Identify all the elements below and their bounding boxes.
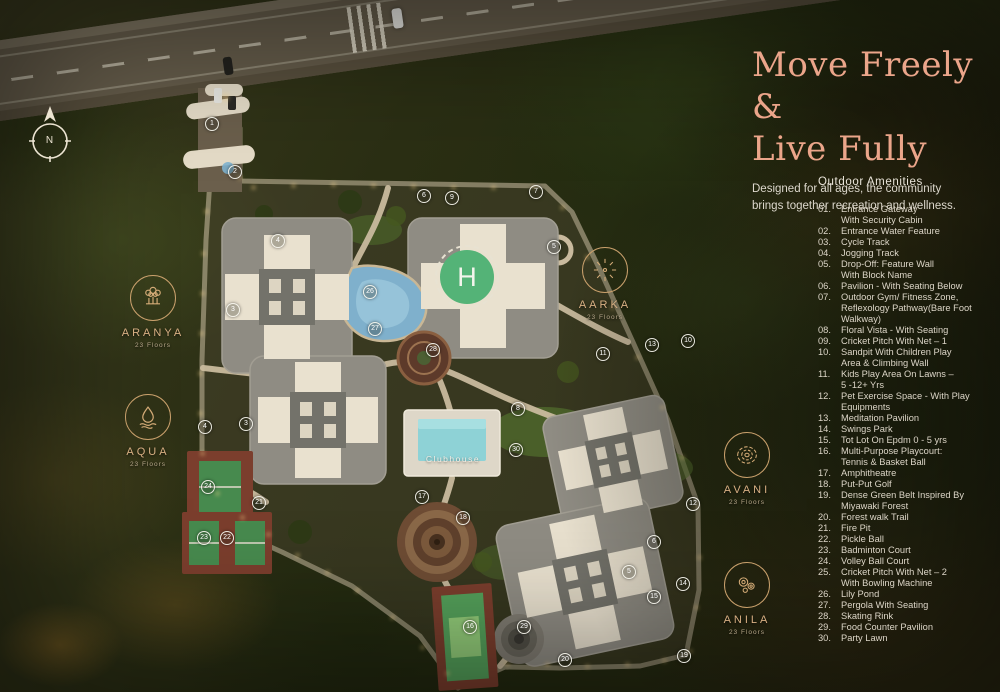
amenity-item-08: 08.Floral Vista - With Seating bbox=[818, 325, 998, 336]
amenities-panel: Outdoor Amenities 01.Entrance GatewayWit… bbox=[818, 176, 998, 644]
amenity-text: Tot Lot On Epdm 0 - 5 yrs bbox=[841, 435, 947, 446]
tower-floors: 23 Floors bbox=[93, 461, 203, 468]
map-marker-14-32[interactable]: 14 bbox=[676, 577, 690, 591]
amenity-item-27: 27.Pergola With Seating bbox=[818, 600, 998, 611]
amenity-number: 15. bbox=[818, 435, 835, 446]
amenity-item-02: 02.Entrance Water Feature bbox=[818, 226, 998, 237]
map-marker-6-4[interactable]: 6 bbox=[417, 189, 431, 203]
amenity-text: Pergola With Seating bbox=[841, 600, 928, 611]
amenity-number: 16. bbox=[818, 446, 835, 457]
amenity-number: 28. bbox=[818, 611, 835, 622]
amenity-number: 23. bbox=[818, 545, 835, 556]
map-marker-16-27[interactable]: 16 bbox=[463, 620, 477, 634]
amenity-text: Put-Put Golf bbox=[841, 479, 892, 490]
map-marker-4-2[interactable]: 4 bbox=[271, 234, 285, 248]
amenity-item-11: 11.Kids Play Area On Lawns –5 -12+ Yrs bbox=[818, 369, 998, 391]
amenity-text: Pavilion - With Seating Below bbox=[841, 281, 962, 292]
amenity-item-23: 23.Badminton Court bbox=[818, 545, 998, 556]
amenity-text: Outdoor Gym/ Fitness Zone,Reflexology Pa… bbox=[841, 292, 972, 325]
amenity-number: 29. bbox=[818, 622, 835, 633]
amenity-number: 30. bbox=[818, 633, 835, 644]
map-marker-23-20[interactable]: 23 bbox=[197, 531, 211, 545]
amenity-item-01: 01.Entrance GatewayWith Security Cabin bbox=[818, 204, 998, 226]
amenity-number: 01. bbox=[818, 204, 835, 215]
amenity-text: Drop-Off: Feature WallWith Block Name bbox=[841, 259, 934, 281]
amenity-item-19: 19.Dense Green Belt Inspired ByMiyawaki … bbox=[818, 490, 998, 512]
amenity-item-17: 17.Amphitheatre bbox=[818, 468, 998, 479]
amenity-number: 09. bbox=[818, 336, 835, 347]
amenities-list: 01.Entrance GatewayWith Security Cabin02… bbox=[818, 204, 998, 644]
tower-name: ANILA bbox=[692, 614, 802, 626]
amenity-text: Floral Vista - With Seating bbox=[841, 325, 948, 336]
amenity-item-26: 26.Lily Pond bbox=[818, 589, 998, 600]
amenity-text: Forest walk Trail bbox=[841, 512, 909, 523]
map-marker-15-31[interactable]: 15 bbox=[647, 590, 661, 604]
amenity-item-05: 05.Drop-Off: Feature WallWith Block Name bbox=[818, 259, 998, 281]
banyan-tree-icon bbox=[130, 275, 176, 321]
map-marker-9-5[interactable]: 9 bbox=[445, 191, 459, 205]
tower-floors: 23 Floors bbox=[692, 499, 802, 506]
map-marker-20-25[interactable]: 20 bbox=[558, 653, 572, 667]
map-marker-10-13[interactable]: 10 bbox=[681, 334, 695, 348]
map-marker-2-1[interactable]: 2 bbox=[228, 165, 242, 179]
tower-label-anila: ANILA23 Floors bbox=[692, 562, 802, 636]
tower-label-avani: AVANI23 Floors bbox=[692, 432, 802, 506]
map-marker-3-17[interactable]: 3 bbox=[239, 417, 253, 431]
amenity-text: Fire Pit bbox=[841, 523, 870, 534]
amenity-item-10: 10.Sandpit With Children PlayArea & Clim… bbox=[818, 347, 998, 369]
title-line-2: Live Fully bbox=[752, 128, 998, 170]
clubhouse-label: Clubhouse bbox=[404, 454, 502, 464]
tower-floors: 23 Floors bbox=[550, 314, 660, 321]
amenity-item-30: 30.Party Lawn bbox=[818, 633, 998, 644]
map-marker-8-14[interactable]: 8 bbox=[511, 402, 525, 416]
tower-name: AVANI bbox=[692, 484, 802, 496]
map-marker-3-3[interactable]: 3 bbox=[226, 303, 240, 317]
amenity-number: 07. bbox=[818, 292, 835, 303]
amenity-text: Pickle Ball bbox=[841, 534, 884, 545]
compass-north-label: N bbox=[25, 118, 75, 164]
amenity-number: 18. bbox=[818, 479, 835, 490]
map-marker-24-18[interactable]: 24 bbox=[201, 480, 215, 494]
amenity-item-16: 16.Multi-Purpose Playcourt:Tennis & Bask… bbox=[818, 446, 998, 468]
amenity-item-24: 24.Volley Ball Court bbox=[818, 556, 998, 567]
amenity-text: Amphitheatre bbox=[841, 468, 896, 479]
tower-name: AARKA bbox=[550, 299, 660, 311]
amenity-item-25: 25.Cricket Pitch With Net – 2With Bowlin… bbox=[818, 567, 998, 589]
map-marker-7-6[interactable]: 7 bbox=[529, 185, 543, 199]
map-marker-19-26[interactable]: 19 bbox=[677, 649, 691, 663]
amenity-item-28: 28.Skating Rink bbox=[818, 611, 998, 622]
amenity-text: Skating Rink bbox=[841, 611, 893, 622]
amenity-number: 22. bbox=[818, 534, 835, 545]
amenity-text: Badminton Court bbox=[841, 545, 911, 556]
map-marker-1-0[interactable]: 1 bbox=[205, 117, 219, 131]
amenity-number: 05. bbox=[818, 259, 835, 270]
amenity-item-22: 22.Pickle Ball bbox=[818, 534, 998, 545]
amenity-number: 14. bbox=[818, 424, 835, 435]
amenity-item-12: 12.Pet Exercise Space - With PlayEquipme… bbox=[818, 391, 998, 413]
page-title: Move Freely & Live Fully bbox=[752, 44, 998, 170]
helipad-label: H bbox=[455, 257, 479, 297]
amenity-text: Meditation Pavilion bbox=[841, 413, 919, 424]
amenity-item-15: 15.Tot Lot On Epdm 0 - 5 yrs bbox=[818, 435, 998, 446]
map-marker-18-23[interactable]: 18 bbox=[456, 511, 470, 525]
amenity-item-06: 06.Pavilion - With Seating Below bbox=[818, 281, 998, 292]
wind-swirls-icon bbox=[724, 562, 770, 608]
amenity-number: 20. bbox=[818, 512, 835, 523]
map-marker-6-29[interactable]: 6 bbox=[647, 535, 661, 549]
amenity-text: Cycle Track bbox=[841, 237, 890, 248]
tower-floors: 23 Floors bbox=[98, 342, 208, 349]
amenity-text: Swings Park bbox=[841, 424, 893, 435]
map-marker-11-12[interactable]: 11 bbox=[596, 347, 610, 361]
masterplan-page: N 12436975262728131110830432421232217182… bbox=[0, 0, 1000, 692]
amenity-item-14: 14.Swings Park bbox=[818, 424, 998, 435]
tower-label-aqua: AQUA23 Floors bbox=[93, 394, 203, 468]
amenities-heading: Outdoor Amenities bbox=[818, 176, 998, 188]
map-marker-28-10[interactable]: 28 bbox=[426, 343, 440, 357]
tower-floors: 23 Floors bbox=[692, 629, 802, 636]
map-marker-22-21[interactable]: 22 bbox=[220, 531, 234, 545]
sunburst-icon bbox=[582, 247, 628, 293]
amenity-text: Party Lawn bbox=[841, 633, 888, 644]
amenity-item-29: 29.Food Counter Pavilion bbox=[818, 622, 998, 633]
amenity-number: 25. bbox=[818, 567, 835, 578]
amenity-text: Multi-Purpose Playcourt:Tennis & Basket … bbox=[841, 446, 942, 468]
tower-label-aranya: ARANYA23 Floors bbox=[98, 275, 208, 349]
amenity-text: Volley Ball Court bbox=[841, 556, 909, 567]
map-marker-26-8[interactable]: 26 bbox=[363, 285, 377, 299]
amenity-number: 08. bbox=[818, 325, 835, 336]
amenity-number: 17. bbox=[818, 468, 835, 479]
amenity-text: Sandpit With Children PlayArea & Climbin… bbox=[841, 347, 952, 369]
amenity-item-21: 21.Fire Pit bbox=[818, 523, 998, 534]
amenity-text: Dense Green Belt Inspired ByMiyawaki For… bbox=[841, 490, 964, 512]
amenity-number: 12. bbox=[818, 391, 835, 402]
map-marker-29-24[interactable]: 29 bbox=[517, 620, 531, 634]
amenity-text: Pet Exercise Space - With PlayEquipments bbox=[841, 391, 970, 413]
tower-name: AQUA bbox=[93, 446, 203, 458]
map-marker-30-15[interactable]: 30 bbox=[509, 443, 523, 457]
amenity-number: 21. bbox=[818, 523, 835, 534]
amenity-text: Entrance Water Feature bbox=[841, 226, 940, 237]
title-line-1: Move Freely & bbox=[752, 44, 998, 128]
amenity-number: 02. bbox=[818, 226, 835, 237]
map-marker-21-19[interactable]: 21 bbox=[252, 496, 266, 510]
amenity-text: Jogging Track bbox=[841, 248, 899, 259]
amenity-text: Cricket Pitch With Net – 2With Bowling M… bbox=[841, 567, 947, 589]
terrain-contours-icon bbox=[724, 432, 770, 478]
amenity-item-18: 18.Put-Put Golf bbox=[818, 479, 998, 490]
amenity-number: 27. bbox=[818, 600, 835, 611]
tower-label-aarka: AARKA23 Floors bbox=[550, 247, 660, 321]
compass: N bbox=[25, 104, 75, 164]
amenity-item-13: 13.Meditation Pavilion bbox=[818, 413, 998, 424]
amenity-number: 13. bbox=[818, 413, 835, 424]
map-marker-5-30[interactable]: 5 bbox=[622, 565, 636, 579]
amenity-number: 04. bbox=[818, 248, 835, 259]
water-drop-icon bbox=[125, 394, 171, 440]
amenity-item-09: 09.Cricket Pitch With Net – 1 bbox=[818, 336, 998, 347]
amenity-text: Cricket Pitch With Net – 1 bbox=[841, 336, 947, 347]
amenity-number: 10. bbox=[818, 347, 835, 358]
amenity-number: 03. bbox=[818, 237, 835, 248]
amenity-number: 24. bbox=[818, 556, 835, 567]
amenity-item-04: 04.Jogging Track bbox=[818, 248, 998, 259]
amenity-item-03: 03.Cycle Track bbox=[818, 237, 998, 248]
amenity-number: 26. bbox=[818, 589, 835, 600]
amenity-number: 19. bbox=[818, 490, 835, 501]
amenity-number: 06. bbox=[818, 281, 835, 292]
map-marker-13-11[interactable]: 13 bbox=[645, 338, 659, 352]
map-marker-27-9[interactable]: 27 bbox=[368, 322, 382, 336]
amenity-text: Lily Pond bbox=[841, 589, 879, 600]
amenity-text: Kids Play Area On Lawns –5 -12+ Yrs bbox=[841, 369, 954, 391]
amenity-number: 11. bbox=[818, 369, 835, 380]
amenity-item-20: 20.Forest walk Trail bbox=[818, 512, 998, 523]
amenity-text: Entrance GatewayWith Security Cabin bbox=[841, 204, 923, 226]
amenity-text: Food Counter Pavilion bbox=[841, 622, 933, 633]
map-marker-17-22[interactable]: 17 bbox=[415, 490, 429, 504]
amenity-item-07: 07.Outdoor Gym/ Fitness Zone,Reflexology… bbox=[818, 292, 998, 325]
tower-name: ARANYA bbox=[98, 327, 208, 339]
